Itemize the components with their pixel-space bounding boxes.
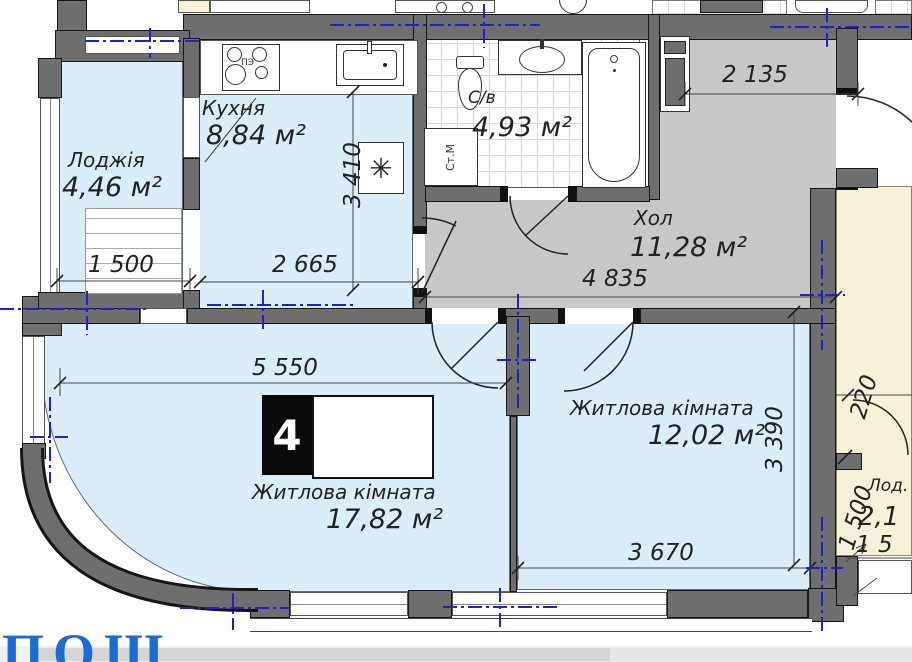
wall-neighbor-stub xyxy=(836,453,862,470)
window-kitchen-loggia xyxy=(183,97,200,158)
wall-rooms-top xyxy=(187,308,430,324)
wall-bath-right xyxy=(648,14,660,200)
room-area-bathroom: 4,93 м² xyxy=(472,112,572,143)
wall-neighbor-top xyxy=(836,168,878,188)
bath-sink-counter xyxy=(498,40,582,75)
window-neighbor-bottom xyxy=(858,560,912,594)
wall-bath-bottom xyxy=(576,186,650,202)
room-label-living2: Житлова кімната xyxy=(570,396,754,420)
floor-plan: ПЭ ✳ Ст.М xyxy=(0,0,912,662)
dim-loggia-width: 1 500 xyxy=(88,252,154,278)
door-jamb xyxy=(558,308,565,324)
door-jamb xyxy=(633,308,640,324)
window-internal xyxy=(140,308,187,324)
apartment-number: 4 xyxy=(272,411,301,460)
washer-label: Ст.М xyxy=(444,143,457,170)
door-jamb xyxy=(498,308,505,324)
room-area-living2: 12,02 м² xyxy=(648,420,765,451)
loggia-hatch-icon xyxy=(85,208,182,294)
dim-kitchen-height: 3 410 xyxy=(340,138,366,208)
dim-living2-height: 3 390 xyxy=(762,402,788,472)
room-label-kitchen: Кухня xyxy=(202,96,265,120)
badge-blank-panel xyxy=(312,395,434,479)
hall-cabinet-icon xyxy=(660,36,690,112)
wall-neighbor-pier xyxy=(836,556,858,606)
vent-symbol: ✳ xyxy=(369,152,392,185)
door-opening-balcony xyxy=(183,210,200,290)
window-living1-left xyxy=(22,336,45,444)
window-loggia-top xyxy=(85,36,180,54)
wall-rooms-divider-thick xyxy=(506,316,530,416)
window-loggia-left xyxy=(40,98,60,298)
upper-unit-fixture xyxy=(795,0,868,13)
room-area-living1: 17,82 м² xyxy=(326,504,443,535)
door-opening-living2 xyxy=(564,308,633,324)
wall-pier xyxy=(38,58,62,98)
dim-living2-width: 3 670 xyxy=(628,540,694,566)
wall-kitchen-loggia xyxy=(183,158,200,210)
room-label-bathroom: С/в xyxy=(468,88,496,108)
dim-hall-entry: 2 135 xyxy=(722,62,788,88)
wall-top-left-pier xyxy=(57,0,87,32)
upper-unit-wall xyxy=(700,0,763,13)
door-jamb xyxy=(836,88,858,95)
wall-kitchen-loggia xyxy=(183,38,200,98)
wall-rooms-top xyxy=(640,308,836,324)
stove-icon: ПЭ xyxy=(222,44,280,91)
room-area-kitchen: 8,84 м² xyxy=(206,120,306,151)
wall-bottom xyxy=(667,590,808,618)
bottom-bar-segment-light xyxy=(610,648,912,661)
door-jamb xyxy=(413,226,427,234)
stove-label: ПЭ xyxy=(241,58,254,68)
wall-rooms-top xyxy=(22,308,140,324)
window-living1-bottom xyxy=(290,592,408,616)
room-label-loggia: Лоджія xyxy=(68,148,145,172)
washing-machine-icon: Ст.М xyxy=(424,128,478,186)
room-area-hall: 11,28 м² xyxy=(630,232,747,263)
kitchen-sink-icon xyxy=(336,44,404,86)
room-label-living1: Житлова кімната xyxy=(252,480,436,504)
wall-right-top xyxy=(836,28,858,90)
upper-unit-basin xyxy=(559,0,587,14)
dim-hall-width: 4 835 xyxy=(582,266,648,292)
window-sill xyxy=(250,618,812,632)
wall-rooms-divider xyxy=(510,416,517,592)
upper-unit-fragment xyxy=(210,0,310,13)
window-living-bottom xyxy=(452,592,667,616)
wall-bottom xyxy=(250,590,290,618)
door-jamb xyxy=(425,308,432,324)
dim-kitchen-width: 2 665 xyxy=(272,252,338,278)
bathtub-icon xyxy=(582,42,646,188)
room-area-loggia: 4,46 м² xyxy=(62,172,162,203)
dim-neighbor-c: 1 5 xyxy=(856,532,893,558)
wall-bottom-pier xyxy=(408,590,452,618)
door-opening-living1 xyxy=(430,308,498,324)
upper-unit-fragment xyxy=(178,0,210,13)
door-jamb xyxy=(500,186,508,202)
watermark-text: ПОШ xyxy=(0,626,230,662)
wall-right xyxy=(810,188,836,610)
upper-unit-sink xyxy=(395,0,495,13)
dim-living1-width: 5 550 xyxy=(252,355,318,381)
wall-pier xyxy=(22,443,46,459)
wall-bath-bottom xyxy=(425,186,508,202)
room-label-hall: Хол xyxy=(634,206,673,230)
apartment-number-badge: 4 xyxy=(262,395,312,475)
door-jamb xyxy=(568,186,576,202)
wall-top xyxy=(183,14,912,40)
